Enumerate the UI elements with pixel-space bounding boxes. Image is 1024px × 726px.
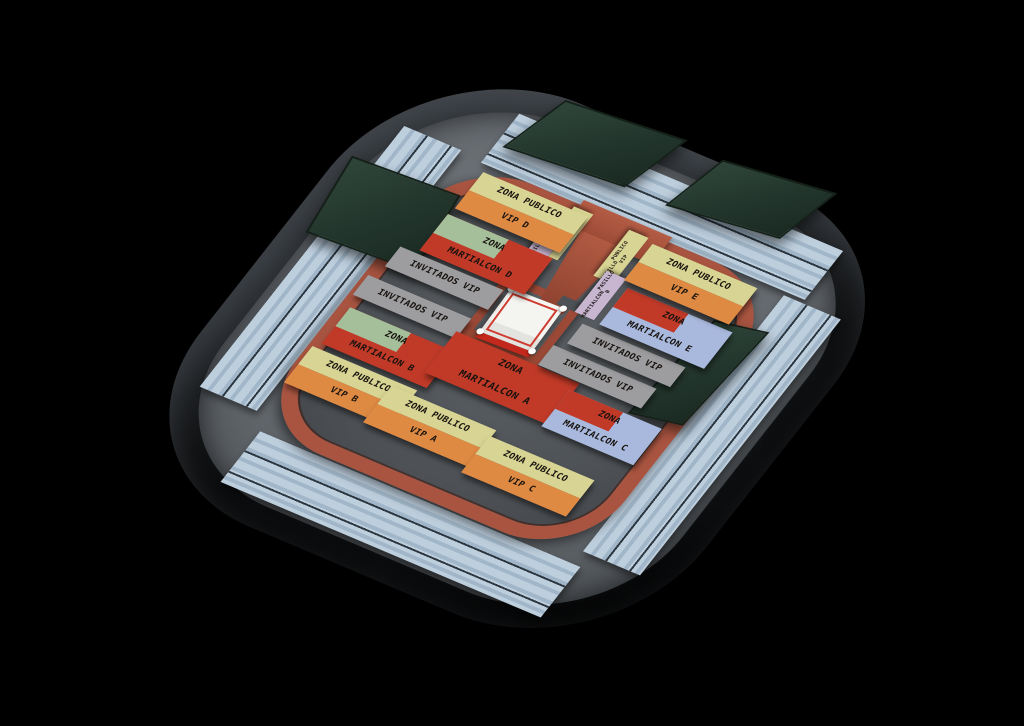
venue-map: ZONA PUBLICO VIP D ZONA MARTIALCON D INV… <box>0 0 1024 726</box>
arena-3d-projection: ZONA PUBLICO VIP D ZONA MARTIALCON D INV… <box>98 40 936 677</box>
